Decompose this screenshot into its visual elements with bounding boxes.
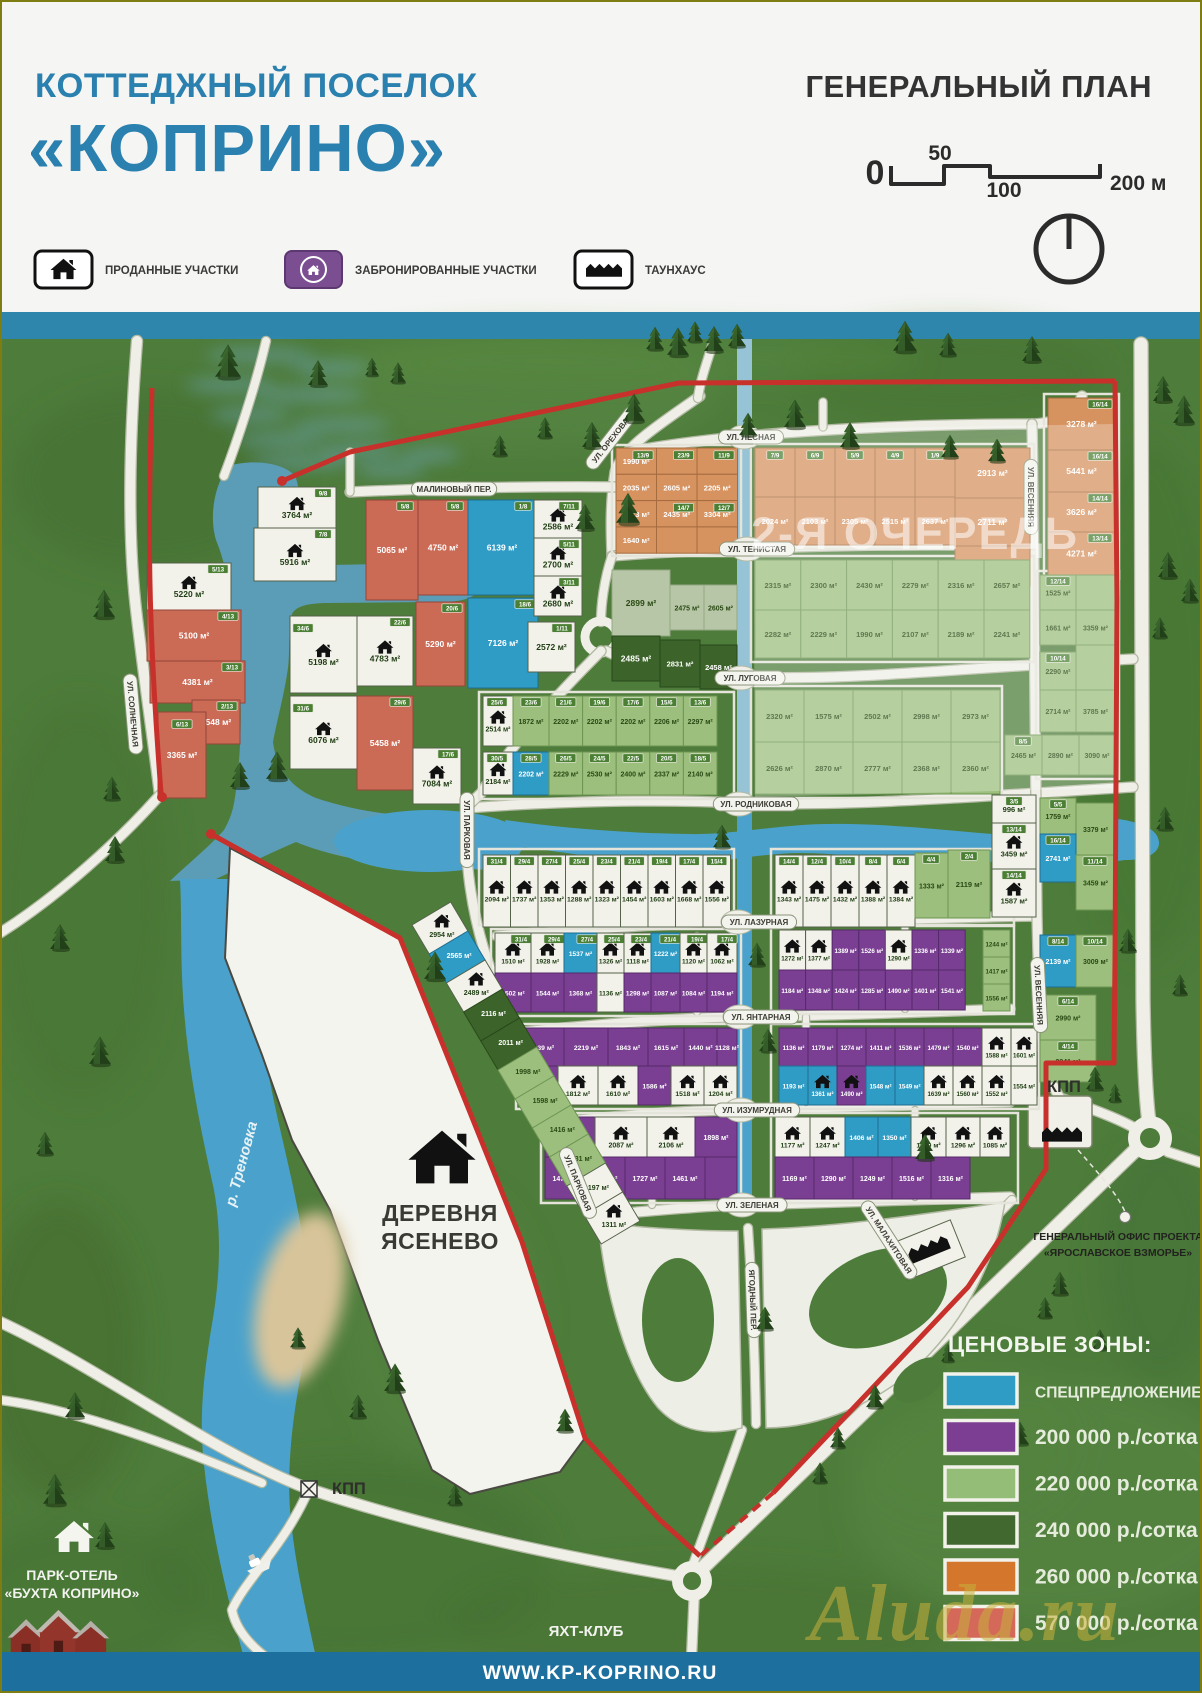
svg-text:200 000 р./сотка: 200 000 р./сотка [1035, 1426, 1198, 1449]
svg-text:2202 м²: 2202 м² [587, 719, 613, 726]
svg-text:2140 м²: 2140 м² [688, 772, 714, 779]
svg-text:23/9: 23/9 [677, 452, 690, 459]
svg-text:1274 м²: 1274 м² [840, 1045, 862, 1052]
svg-text:1169 м²: 1169 м² [782, 1176, 807, 1183]
svg-text:4750 м²: 4750 м² [428, 543, 459, 553]
svg-text:2116 м²: 2116 м² [481, 1011, 506, 1018]
svg-text:2586 м²: 2586 м² [543, 522, 574, 532]
svg-text:1587 м²: 1587 м² [1001, 897, 1028, 906]
svg-text:1084 м²: 1084 м² [682, 991, 706, 998]
svg-text:ТАУНХАУС: ТАУНХАУС [645, 265, 706, 277]
svg-text:УЛ. ЗЕЛЕНАЯ: УЛ. ЗЕЛЕНАЯ [725, 1201, 779, 1210]
svg-text:1/8: 1/8 [519, 503, 528, 510]
svg-text:1/11: 1/11 [556, 625, 568, 632]
svg-text:1560 м²: 1560 м² [956, 1091, 978, 1098]
svg-text:1479 м²: 1479 м² [927, 1045, 949, 1052]
svg-text:25/4: 25/4 [608, 936, 621, 943]
svg-text:ДЕРЕВНЯ: ДЕРЕВНЯ [382, 1200, 498, 1226]
svg-text:3459 м²: 3459 м² [1083, 881, 1109, 888]
svg-text:5065 м²: 5065 м² [377, 545, 408, 555]
svg-text:28/5: 28/5 [525, 755, 538, 762]
svg-text:1343 м²: 1343 м² [777, 897, 802, 904]
svg-text:6/13: 6/13 [176, 721, 189, 728]
svg-text:2219 м²: 2219 м² [574, 1045, 599, 1052]
svg-text:2106 м²: 2106 м² [658, 1143, 684, 1150]
svg-text:1536 м²: 1536 м² [898, 1045, 920, 1052]
svg-text:1554 м²: 1554 м² [1013, 1084, 1035, 1091]
svg-text:0: 0 [866, 154, 885, 192]
svg-text:16/14: 16/14 [1050, 837, 1066, 844]
svg-text:23/4: 23/4 [601, 858, 614, 865]
svg-text:КПП: КПП [332, 1480, 366, 1498]
svg-text:1537 м²: 1537 м² [569, 951, 593, 958]
svg-text:1639 м²: 1639 м² [927, 1091, 949, 1098]
svg-text:4/4: 4/4 [927, 856, 936, 863]
svg-text:2202 м²: 2202 м² [518, 772, 544, 779]
svg-text:1526 м²: 1526 м² [861, 948, 883, 955]
svg-text:15/6: 15/6 [661, 699, 674, 706]
svg-text:1406 м²: 1406 м² [849, 1135, 874, 1142]
svg-text:7/8: 7/8 [319, 531, 328, 538]
svg-text:1401 м²: 1401 м² [914, 988, 936, 995]
svg-text:1440 м²: 1440 м² [688, 1045, 713, 1052]
svg-text:50: 50 [928, 142, 951, 165]
svg-text:2184 м²: 2184 м² [485, 779, 511, 786]
svg-text:УЛ. ПАРКОВАЯ: УЛ. ПАРКОВАЯ [462, 800, 471, 860]
svg-text:ЦЕНОВЫЕ ЗОНЫ:: ЦЕНОВЫЕ ЗОНЫ: [948, 1332, 1152, 1357]
svg-text:2337 м²: 2337 м² [654, 772, 680, 779]
svg-text:1062 м²: 1062 м² [710, 959, 734, 966]
svg-text:19/4: 19/4 [691, 936, 704, 943]
svg-text:2/13: 2/13 [221, 703, 234, 710]
svg-text:21/4: 21/4 [628, 858, 641, 865]
svg-text:1615 м²: 1615 м² [654, 1045, 679, 1052]
svg-text:1759 м²: 1759 м² [1045, 814, 1071, 821]
svg-text:1556 м²: 1556 м² [985, 996, 1007, 1003]
svg-text:1898 м²: 1898 м² [703, 1135, 729, 1142]
svg-text:2400 м²: 2400 м² [620, 772, 646, 779]
svg-text:16/14: 16/14 [1092, 401, 1108, 408]
svg-text:8/14: 8/14 [1052, 938, 1065, 945]
svg-text:1475 м²: 1475 м² [805, 897, 830, 904]
svg-text:22/6: 22/6 [394, 619, 407, 626]
svg-text:19/4: 19/4 [656, 858, 669, 865]
svg-text:240 000 р./сотка: 240 000 р./сотка [1035, 1519, 1198, 1542]
svg-text:2954 м²: 2954 м² [429, 932, 455, 939]
svg-text:1136 м²: 1136 м² [599, 991, 623, 998]
svg-text:2297 м²: 2297 м² [688, 719, 714, 726]
svg-text:УЛ. ЯНТАРНАЯ: УЛ. ЯНТАРНАЯ [731, 1013, 790, 1022]
svg-text:WWW.KP-KOPRINO.RU: WWW.KP-KOPRINO.RU [483, 1662, 718, 1684]
svg-text:18/6: 18/6 [519, 601, 532, 608]
svg-text:6139 м²: 6139 м² [487, 543, 518, 553]
svg-text:1323 м²: 1323 м² [595, 897, 620, 904]
svg-text:2011 м²: 2011 м² [498, 1040, 523, 1047]
svg-text:«КОПРИНО»: «КОПРИНО» [28, 111, 446, 186]
svg-text:2489 м²: 2489 м² [464, 990, 490, 997]
svg-text:13/9: 13/9 [637, 452, 650, 459]
svg-text:«ЯРОСЛАВСКОЕ ВЗМОРЬЕ»: «ЯРОСЛАВСКОЕ ВЗМОРЬЕ» [1044, 1247, 1192, 1259]
svg-text:29/4: 29/4 [548, 936, 561, 943]
svg-text:29/4: 29/4 [518, 858, 531, 865]
svg-text:1389 м²: 1389 м² [834, 948, 856, 955]
svg-text:6076 м²: 6076 м² [308, 735, 339, 745]
svg-text:17/6: 17/6 [442, 751, 455, 758]
svg-text:ЯХТ-КЛУБ: ЯХТ-КЛУБ [549, 1623, 624, 1640]
svg-text:2530 м²: 2530 м² [587, 772, 613, 779]
svg-text:1249 м²: 1249 м² [860, 1176, 886, 1183]
svg-text:1244 м²: 1244 м² [985, 942, 1007, 949]
svg-text:31/4: 31/4 [515, 936, 528, 943]
svg-text:1247 м²: 1247 м² [815, 1143, 840, 1150]
svg-text:5/11: 5/11 [563, 541, 575, 548]
svg-text:2990 м²: 2990 м² [1055, 1016, 1081, 1023]
svg-text:УЛ. ЛАЗУРНАЯ: УЛ. ЛАЗУРНАЯ [730, 918, 789, 927]
svg-text:2605 м²: 2605 м² [663, 483, 690, 492]
svg-text:1516 м²: 1516 м² [899, 1176, 925, 1183]
svg-text:3764 м²: 3764 м² [282, 510, 313, 520]
svg-text:2087 м²: 2087 м² [608, 1143, 634, 1150]
svg-text:1588 м²: 1588 м² [985, 1053, 1007, 1060]
svg-text:1388 м²: 1388 м² [861, 897, 886, 904]
svg-text:1586 м²: 1586 м² [642, 1084, 667, 1091]
svg-text:1737 м²: 1737 м² [512, 897, 537, 904]
svg-text:1549 м²: 1549 м² [898, 1084, 920, 1091]
svg-text:30/5: 30/5 [491, 755, 504, 762]
svg-text:1179 м²: 1179 м² [812, 1045, 834, 1052]
svg-text:УЛ. РОДНИКОВАЯ: УЛ. РОДНИКОВАЯ [720, 800, 792, 809]
svg-text:КПП: КПП [1047, 1078, 1081, 1096]
svg-text:1368 м²: 1368 м² [569, 991, 593, 998]
svg-text:2119 м²: 2119 м² [956, 880, 983, 889]
svg-text:200 м: 200 м [1110, 172, 1166, 195]
svg-text:31/6: 31/6 [297, 705, 310, 712]
svg-text:2700 м²: 2700 м² [543, 560, 574, 570]
svg-text:1118 м²: 1118 м² [626, 959, 649, 966]
svg-text:1454 м²: 1454 м² [622, 897, 647, 904]
svg-text:2139 м²: 2139 м² [1045, 959, 1071, 966]
svg-text:1311 м²: 1311 м² [602, 1222, 627, 1229]
svg-text:34/6: 34/6 [297, 625, 310, 632]
svg-text:1285 м²: 1285 м² [861, 988, 883, 995]
svg-text:1298 м²: 1298 м² [626, 991, 650, 998]
svg-text:3379 м²: 3379 м² [1083, 827, 1109, 834]
svg-text:ЯСЕНЕВО: ЯСЕНЕВО [381, 1228, 499, 1254]
svg-text:3365 м²: 3365 м² [167, 750, 198, 760]
svg-text:2202 м²: 2202 м² [553, 719, 579, 726]
svg-text:26/5: 26/5 [560, 755, 573, 762]
svg-text:3459 м²: 3459 м² [1001, 850, 1028, 859]
svg-text:МАЛИНОВЫЙ ПЕР.: МАЛИНОВЫЙ ПЕР. [417, 485, 492, 494]
svg-text:1193 м²: 1193 м² [783, 1084, 805, 1091]
svg-text:20/5: 20/5 [661, 755, 674, 762]
svg-text:2206 м²: 2206 м² [654, 719, 680, 726]
svg-text:1603 м²: 1603 м² [650, 897, 675, 904]
svg-text:6/14: 6/14 [1062, 998, 1075, 1005]
svg-text:1598 м²: 1598 м² [533, 1098, 559, 1105]
svg-text:1461 м²: 1461 м² [672, 1176, 698, 1183]
svg-text:12/7: 12/7 [718, 505, 731, 512]
svg-text:4/13: 4/13 [222, 613, 235, 620]
svg-text:17/4: 17/4 [721, 936, 734, 943]
svg-text:1194 м²: 1194 м² [711, 991, 735, 998]
svg-text:1326 м²: 1326 м² [599, 959, 623, 966]
svg-text:1333 м²: 1333 м² [919, 884, 945, 891]
svg-text:13/6: 13/6 [694, 699, 707, 706]
svg-text:5/8: 5/8 [451, 503, 460, 510]
svg-text:5916 м²: 5916 м² [280, 557, 311, 567]
svg-text:1384 м²: 1384 м² [889, 897, 914, 904]
svg-text:2229 м²: 2229 м² [553, 772, 579, 779]
svg-text:3/11: 3/11 [563, 579, 575, 586]
svg-text:4783 м²: 4783 м² [370, 654, 401, 664]
svg-text:27/4: 27/4 [546, 858, 559, 865]
svg-text:1727 м²: 1727 м² [632, 1176, 658, 1183]
svg-text:1556 м²: 1556 м² [705, 897, 730, 904]
svg-text:1518 м²: 1518 м² [675, 1091, 700, 1098]
svg-text:СПЕЦПРЕДЛОЖЕНИЕ: СПЕЦПРЕДЛОЖЕНИЕ [1035, 1385, 1202, 1402]
svg-text:1424 м²: 1424 м² [834, 988, 856, 995]
svg-text:1540 м²: 1540 м² [956, 1045, 978, 1052]
svg-text:13/14: 13/14 [1006, 826, 1022, 833]
svg-text:1998 м²: 1998 м² [515, 1069, 541, 1076]
svg-text:2475 м²: 2475 м² [674, 606, 700, 613]
svg-text:2/4: 2/4 [965, 853, 974, 860]
svg-text:1541 м²: 1541 м² [941, 988, 963, 995]
svg-text:ГЕНЕРАЛЬНЫЙ ОФИС ПРОЕКТА: ГЕНЕРАЛЬНЫЙ ОФИС ПРОЕКТА [1033, 1230, 1202, 1243]
svg-text:4381 м²: 4381 м² [182, 677, 213, 687]
svg-text:27/4: 27/4 [581, 936, 594, 943]
svg-text:20/6: 20/6 [446, 605, 459, 612]
svg-text:8/4: 8/4 [869, 858, 878, 865]
svg-text:7/11: 7/11 [563, 503, 575, 510]
svg-text:1085 м²: 1085 м² [983, 1143, 1008, 1150]
svg-text:Aluda.ru: Aluda.ru [804, 1570, 1121, 1658]
svg-text:1350 м²: 1350 м² [882, 1135, 907, 1142]
svg-text:3/5: 3/5 [1010, 798, 1019, 805]
svg-text:2485 м²: 2485 м² [621, 654, 652, 664]
svg-text:2831 м²: 2831 м² [667, 660, 694, 669]
svg-text:10/4: 10/4 [839, 858, 852, 865]
svg-text:29/6: 29/6 [394, 699, 407, 706]
svg-text:5220 м²: 5220 м² [174, 589, 205, 599]
svg-text:2514 м²: 2514 м² [485, 727, 511, 734]
svg-text:1316 м²: 1316 м² [938, 1176, 964, 1183]
svg-text:1136 м²: 1136 м² [783, 1045, 805, 1052]
svg-text:2605 м²: 2605 м² [708, 606, 734, 613]
svg-text:1128 м²: 1128 м² [715, 1045, 740, 1052]
svg-text:ЗАБРОНИРОВАННЫЕ УЧАСТКИ: ЗАБРОНИРОВАННЫЕ УЧАСТКИ [355, 265, 537, 277]
svg-text:1348 м²: 1348 м² [808, 988, 830, 995]
svg-text:5198 м²: 5198 м² [308, 657, 339, 667]
svg-text:2565 м²: 2565 м² [447, 953, 473, 960]
svg-text:10/14: 10/14 [1087, 938, 1103, 945]
svg-text:19/6: 19/6 [593, 699, 606, 706]
svg-text:12/4: 12/4 [811, 858, 824, 865]
svg-text:2205 м²: 2205 м² [704, 483, 731, 492]
svg-text:1872 м²: 1872 м² [518, 719, 544, 726]
svg-text:1640 м²: 1640 м² [623, 536, 650, 545]
svg-text:14/14: 14/14 [1006, 872, 1022, 879]
svg-text:1288 м²: 1288 м² [567, 897, 592, 904]
svg-text:1184 м²: 1184 м² [781, 988, 803, 995]
svg-text:5290 м²: 5290 м² [425, 639, 456, 649]
svg-text:1843 м²: 1843 м² [616, 1045, 641, 1052]
svg-text:11/14: 11/14 [1087, 858, 1103, 865]
svg-text:31/4: 31/4 [491, 858, 504, 865]
svg-text:21/4: 21/4 [664, 936, 677, 943]
svg-text:2680 м²: 2680 м² [543, 599, 574, 609]
svg-text:2-Я ОЧЕРЕДЬ: 2-Я ОЧЕРЕДЬ [751, 508, 1079, 559]
svg-text:5100 м²: 5100 м² [179, 631, 210, 641]
svg-text:1177 м²: 1177 м² [781, 1143, 806, 1150]
svg-text:1510 м²: 1510 м² [501, 959, 525, 966]
svg-text:9/8: 9/8 [319, 490, 328, 497]
svg-text:7126 м²: 7126 м² [488, 638, 519, 648]
svg-text:1339 м²: 1339 м² [941, 948, 963, 955]
svg-text:7084 м²: 7084 м² [422, 779, 453, 789]
svg-text:23/6: 23/6 [525, 699, 538, 706]
svg-text:17/6: 17/6 [627, 699, 640, 706]
svg-text:14/4: 14/4 [783, 858, 796, 865]
svg-text:«БУХТА КОПРИНО»: «БУХТА КОПРИНО» [5, 1585, 140, 1601]
svg-text:1377 м²: 1377 м² [808, 956, 830, 963]
svg-text:4/14: 4/14 [1062, 1043, 1075, 1050]
svg-text:1812 м²: 1812 м² [566, 1091, 591, 1098]
svg-text:1668 м²: 1668 м² [677, 897, 702, 904]
svg-text:ГЕНЕРАЛЬНЫЙ ПЛАН: ГЕНЕРАЛЬНЫЙ ПЛАН [805, 68, 1152, 104]
svg-text:1361 м²: 1361 м² [811, 1091, 833, 1098]
svg-text:1222 м²: 1222 м² [654, 951, 678, 958]
svg-text:25/4: 25/4 [573, 858, 586, 865]
svg-text:1204 м²: 1204 м² [708, 1091, 733, 1098]
svg-text:УЛ. ИЗУМРУДНАЯ: УЛ. ИЗУМРУДНАЯ [722, 1106, 792, 1115]
svg-text:1490 м²: 1490 м² [840, 1091, 862, 1098]
svg-text:21/6: 21/6 [560, 699, 573, 706]
svg-text:22/5: 22/5 [627, 755, 640, 762]
svg-text:1296 м²: 1296 м² [951, 1143, 976, 1150]
svg-text:1601 м²: 1601 м² [1013, 1053, 1035, 1060]
svg-text:ПАРК-ОТЕЛЬ: ПАРК-ОТЕЛЬ [26, 1567, 117, 1583]
svg-text:3009 м²: 3009 м² [1083, 959, 1109, 966]
svg-text:14/7: 14/7 [677, 505, 690, 512]
svg-text:5/8: 5/8 [401, 503, 410, 510]
svg-text:1290 м²: 1290 м² [821, 1176, 847, 1183]
svg-text:24/5: 24/5 [593, 755, 606, 762]
svg-text:15/4: 15/4 [711, 858, 724, 865]
svg-text:1432 м²: 1432 м² [833, 897, 858, 904]
svg-text:2035 м²: 2035 м² [623, 483, 650, 492]
svg-text:1087 м²: 1087 м² [654, 991, 678, 998]
svg-text:1353 м²: 1353 м² [540, 897, 565, 904]
svg-text:2741 м²: 2741 м² [1045, 856, 1071, 863]
svg-text:1272 м²: 1272 м² [781, 956, 803, 963]
svg-text:1120 м²: 1120 м² [682, 959, 706, 966]
svg-text:6/4: 6/4 [897, 858, 906, 865]
svg-text:5/5: 5/5 [1054, 801, 1063, 808]
svg-text:1544 м²: 1544 м² [536, 991, 560, 998]
svg-text:1548 м²: 1548 м² [869, 1084, 891, 1091]
svg-text:КОТТЕДЖНЫЙ ПОСЕЛОК: КОТТЕДЖНЫЙ ПОСЕЛОК [35, 65, 478, 105]
svg-text:2899 м²: 2899 м² [626, 598, 657, 608]
svg-text:1552 м²: 1552 м² [985, 1091, 1007, 1098]
svg-text:996 м²: 996 м² [1003, 805, 1026, 814]
svg-text:1928 м²: 1928 м² [536, 959, 560, 966]
svg-text:3/13: 3/13 [226, 664, 239, 671]
svg-text:25/6: 25/6 [491, 699, 504, 706]
svg-text:1336 м²: 1336 м² [914, 948, 936, 955]
svg-text:17/4: 17/4 [683, 858, 696, 865]
svg-text:1490 м²: 1490 м² [888, 988, 910, 995]
svg-text:100: 100 [986, 179, 1021, 202]
svg-text:1417 м²: 1417 м² [985, 969, 1007, 976]
svg-text:1411 м²: 1411 м² [870, 1045, 892, 1052]
svg-text:220 000 р./сотка: 220 000 р./сотка [1035, 1473, 1198, 1496]
svg-text:1416 м²: 1416 м² [550, 1127, 576, 1134]
svg-text:2572 м²: 2572 м² [536, 642, 567, 652]
svg-text:1290 м²: 1290 м² [888, 956, 910, 963]
svg-text:5458 м²: 5458 м² [370, 738, 401, 748]
svg-text:11/9: 11/9 [718, 452, 730, 459]
svg-text:18/5: 18/5 [694, 755, 707, 762]
svg-text:ПРОДАННЫЕ УЧАСТКИ: ПРОДАННЫЕ УЧАСТКИ [105, 265, 238, 277]
svg-text:1610 м²: 1610 м² [606, 1091, 631, 1098]
svg-text:2202 м²: 2202 м² [620, 719, 646, 726]
svg-text:5/13: 5/13 [212, 566, 225, 573]
svg-text:2094 м²: 2094 м² [485, 897, 510, 904]
svg-text:23/4: 23/4 [635, 936, 648, 943]
